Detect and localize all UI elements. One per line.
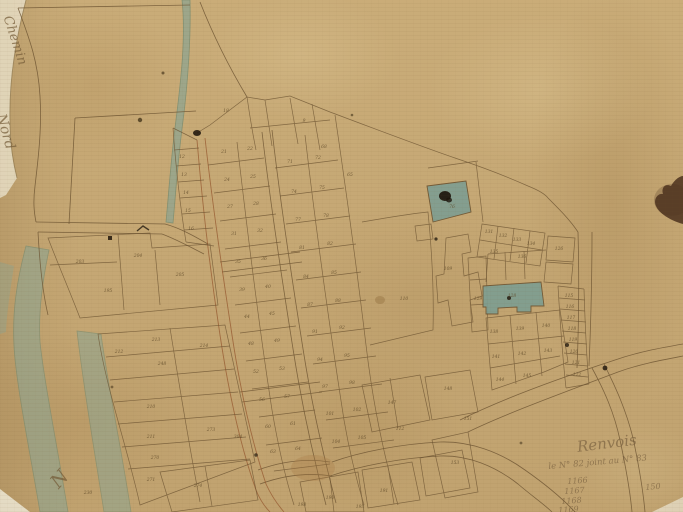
parcel-number: 110 — [400, 296, 409, 302]
parcel-number: 138 — [490, 329, 499, 335]
parcel-number: 84 — [303, 274, 309, 280]
parcel-number: 210 — [146, 404, 156, 410]
parcel-number: 144 — [496, 377, 505, 383]
parcel-number: 48 — [247, 341, 254, 347]
water-streams — [0, 0, 190, 512]
parcel-number: 82 — [327, 241, 333, 247]
parcel-number: 214 — [199, 343, 209, 349]
parcel-number: 52 — [253, 369, 259, 375]
parcel-number: 88 — [335, 298, 341, 304]
parcel-number: 139 — [516, 326, 525, 332]
parcel-number: 190 — [326, 495, 335, 501]
parcel-number: 44 — [243, 314, 250, 320]
parcel-number: 22 — [246, 146, 253, 152]
parcel-number: 132 — [499, 233, 508, 239]
parcel-number: 78 — [323, 213, 329, 219]
parcel-number: 27 — [226, 204, 233, 210]
parcel-numbers: 1213141516189686520320419520521321224821… — [75, 108, 582, 510]
parcel-number: 28 — [252, 201, 259, 207]
parcel-number: 98 — [349, 380, 355, 386]
cadastral-map: 1213141516189686520320419520521321224821… — [0, 0, 683, 512]
parcel-number: 143 — [544, 348, 553, 354]
parcel-number: 230 — [83, 490, 93, 496]
parcel-number: 142 — [518, 351, 527, 357]
parcel-number: 304 — [234, 434, 243, 440]
parcel-number: 271 — [146, 477, 156, 483]
parcel-number: 116 — [566, 304, 575, 310]
parcel-number: 128 — [508, 293, 517, 299]
parcel-number: 104 — [332, 439, 341, 445]
parcel-number: 94 — [317, 357, 323, 363]
parcel-number: 140 — [542, 323, 551, 329]
parcel-number: 134 — [527, 241, 536, 247]
parcel-number: 87 — [307, 302, 313, 308]
parcel-number: 102 — [353, 407, 362, 413]
field-boundaries — [18, 2, 247, 224]
parcel-number: 119 — [569, 337, 578, 343]
parcel-number: 105 — [358, 435, 367, 441]
parcel-number: 35 — [235, 259, 241, 265]
stream-band-left — [14, 246, 68, 512]
parcel-number: 213 — [151, 337, 161, 343]
parcel-number: 212 — [114, 349, 124, 355]
parcel-number: 148 — [444, 386, 453, 392]
parcel-number: 193 — [356, 504, 365, 510]
parcel-number: 274 — [193, 483, 203, 489]
parcel-number: 56 — [259, 397, 265, 403]
parcel-number: 204 — [133, 253, 143, 259]
parcel-number: 76 — [449, 204, 455, 210]
parcel-number: 101 — [326, 411, 335, 417]
parcel-number: 15 — [185, 208, 191, 214]
parcel-number: 118 — [568, 326, 577, 332]
parcel-number: 195 — [104, 288, 113, 294]
parcel-number: 18 — [223, 108, 229, 114]
stream-wisp — [0, 262, 14, 334]
parcel-number: 117 — [567, 315, 576, 321]
parcel-number: 133 — [513, 237, 522, 243]
ink-blots — [108, 72, 683, 482]
parcel-number: 16 — [188, 226, 194, 232]
parcel-number: 109 — [444, 266, 453, 272]
parcel-number: 97 — [322, 384, 328, 390]
parcel-number: 81 — [299, 245, 305, 251]
parcel-number: 153 — [451, 460, 460, 466]
parcel-number: 135 — [490, 249, 499, 255]
parcel-number: 32 — [257, 228, 263, 234]
parcel-number: 53 — [279, 366, 285, 372]
parcel-number: 63 — [270, 449, 276, 455]
parcel-number: 273 — [206, 427, 216, 433]
parcel-number: 92 — [339, 325, 345, 331]
parcel-number: 85 — [331, 270, 337, 276]
parcel-number: 64 — [295, 446, 301, 452]
parcel-number: 74 — [291, 189, 297, 195]
road-red-street — [197, 138, 284, 512]
parcel-number: 205 — [175, 272, 185, 278]
parcel-number: 49 — [273, 338, 280, 344]
parcel-number: 68 — [321, 144, 327, 150]
parcel-number: 191 — [380, 488, 389, 494]
parcel-number: 72 — [315, 155, 321, 161]
parcel-number: 12 — [179, 154, 185, 160]
stream-band-center — [77, 331, 131, 512]
map-drawing: 1213141516189686520320419520521321224821… — [0, 0, 683, 512]
junction-stain — [291, 455, 335, 481]
parcel-number: 21 — [220, 149, 227, 155]
parcel-number: 77 — [295, 217, 301, 223]
parcel-number: 121 — [572, 360, 581, 366]
parcel-number: 136 — [518, 254, 527, 260]
parcel-number: 129 — [474, 296, 483, 302]
parcel-number: 39 — [239, 287, 245, 293]
parcel-number: 65 — [347, 172, 353, 178]
parcel-number: 120 — [570, 349, 579, 355]
parcel-number: 198 — [298, 502, 307, 508]
parcel-number: 61 — [290, 421, 296, 427]
parcel-number: 270 — [150, 455, 160, 461]
parcel-number: 60 — [265, 424, 271, 430]
parcel-number: 145 — [523, 373, 532, 379]
parcel-number: 95 — [344, 353, 350, 359]
parcel-number: 147 — [388, 400, 397, 406]
parcel-number: 75 — [319, 185, 325, 191]
parcel-number: 31 — [231, 231, 237, 237]
parcel-number: 141 — [492, 354, 501, 360]
parcel-number: 14 — [183, 190, 189, 196]
parcel-number: 122 — [573, 372, 582, 378]
parcel-number: 40 — [264, 284, 271, 290]
roads — [36, 130, 683, 512]
parcel-number: 24 — [223, 177, 230, 183]
parcel-number: 112 — [396, 426, 405, 432]
parcel-number: 91 — [312, 329, 318, 335]
parcel-number: 131 — [485, 229, 494, 235]
parcel-number: 115 — [565, 293, 574, 299]
parcel-number: 9 — [303, 118, 306, 124]
parcel-number: 211 — [146, 434, 156, 440]
parcel-number: 151 — [464, 416, 473, 422]
parcel-number: 36 — [261, 256, 267, 262]
parcel-number: 45 — [268, 311, 275, 317]
parcel-number: 25 — [249, 174, 256, 180]
parcel-number: 57 — [284, 394, 290, 400]
parcel-number: 13 — [181, 172, 187, 178]
parcel-number: 248 — [157, 361, 167, 367]
parcel-number: 71 — [287, 159, 293, 165]
parcel-number: 126 — [555, 246, 564, 252]
parcel-number: 203 — [75, 259, 85, 265]
